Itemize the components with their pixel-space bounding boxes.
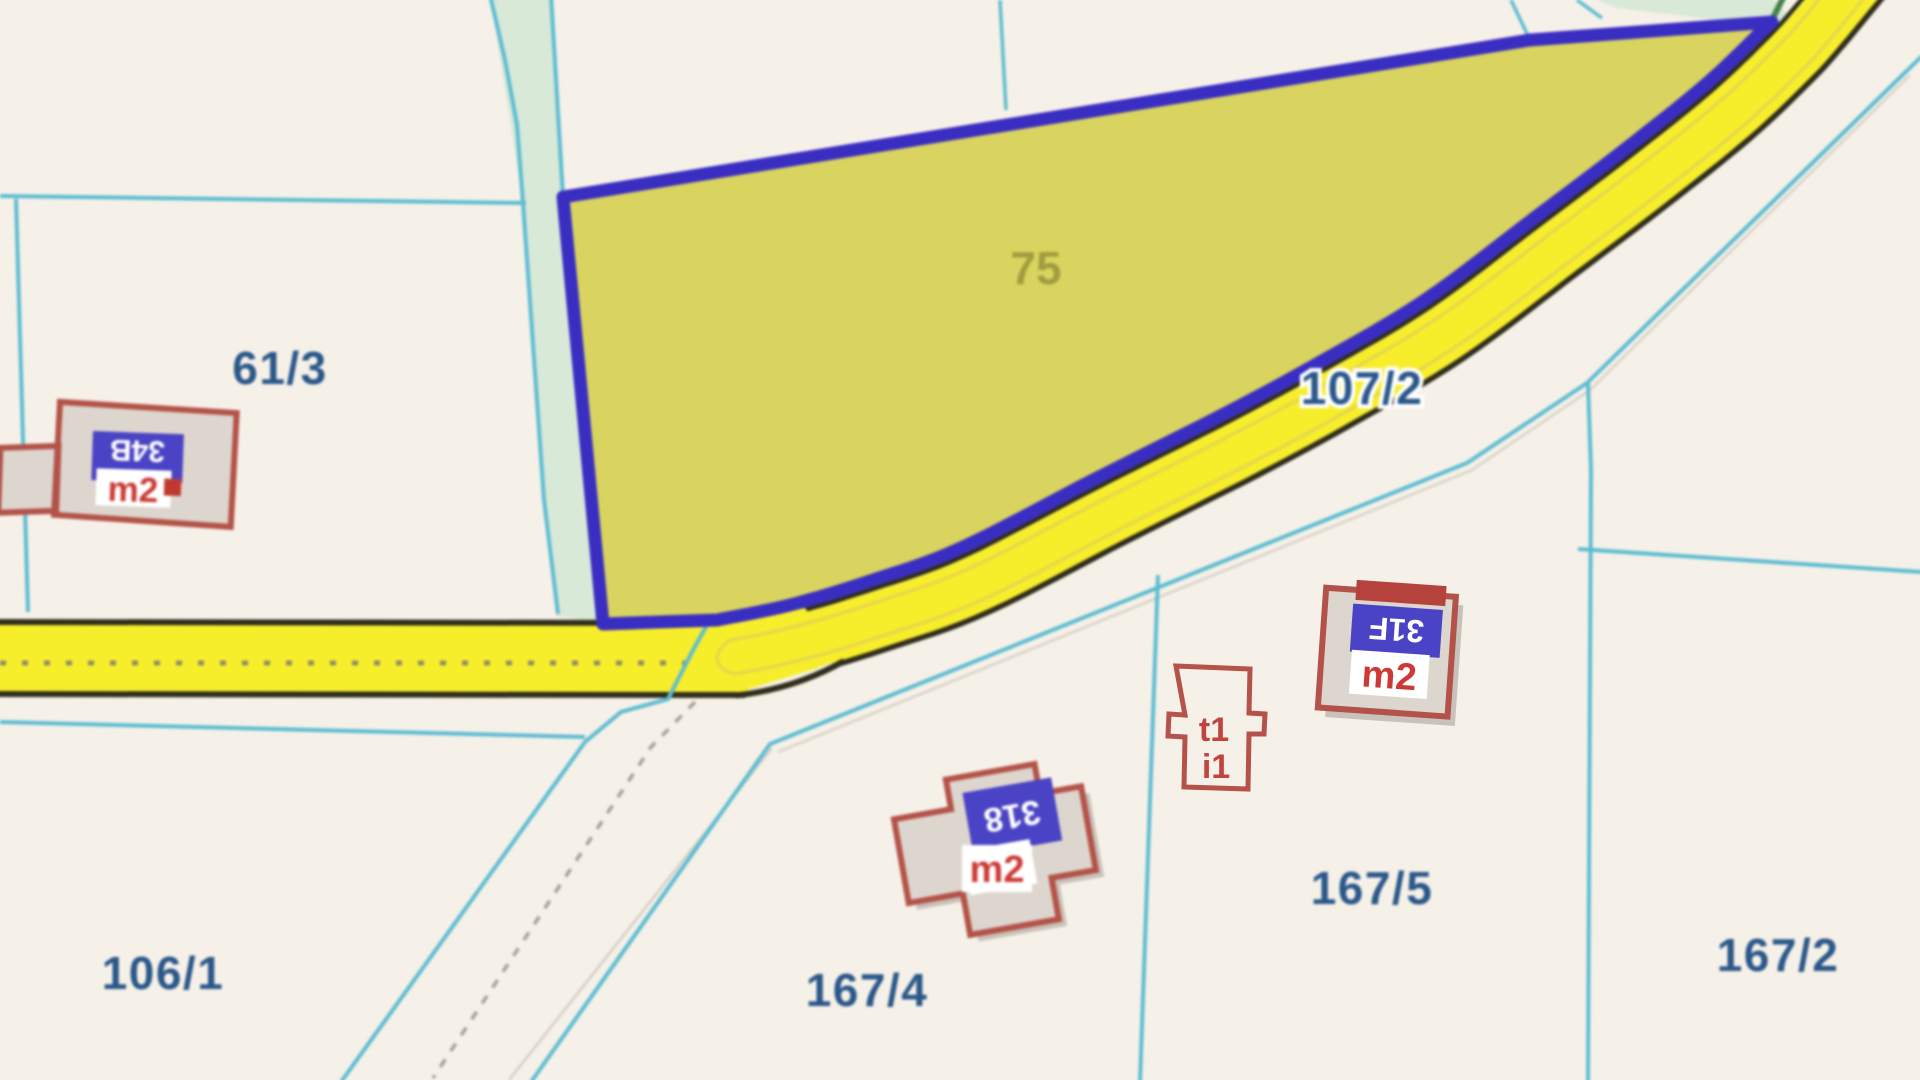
svg-text:m2: m2 [1360, 653, 1418, 699]
svg-text:m2: m2 [107, 470, 159, 511]
svg-text:i1: i1 [1202, 748, 1230, 786]
svg-text:61/3: 61/3 [232, 342, 328, 394]
svg-text:167/5: 167/5 [1311, 862, 1434, 914]
svg-text:106/1: 106/1 [102, 947, 225, 999]
svg-text:167/2: 167/2 [1717, 929, 1840, 981]
svg-text:34B: 34B [109, 433, 165, 468]
svg-text:107/2: 107/2 [1301, 362, 1424, 414]
svg-text:75: 75 [1010, 242, 1061, 294]
svg-text:167/4: 167/4 [806, 964, 929, 1016]
svg-text:31F: 31F [1368, 610, 1426, 650]
svg-text:t1: t1 [1199, 711, 1229, 749]
svg-text:m2: m2 [970, 849, 1025, 891]
